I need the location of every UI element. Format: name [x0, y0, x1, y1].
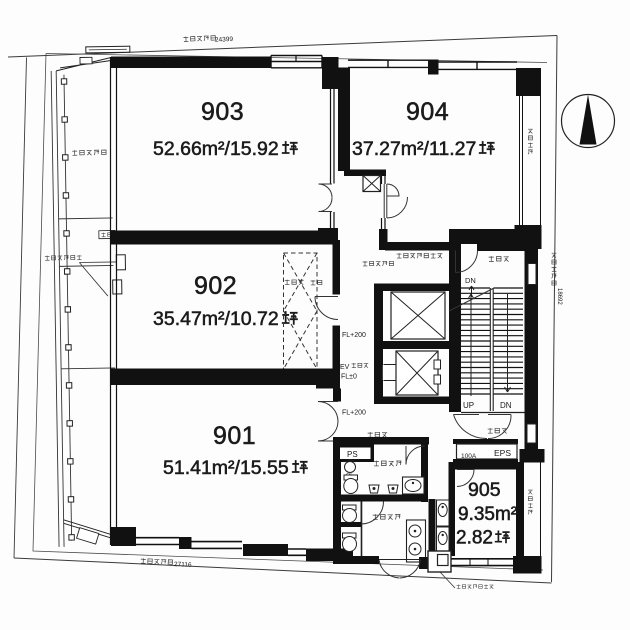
svg-text:27116: 27116 [174, 561, 192, 569]
svg-text:24399: 24399 [215, 36, 234, 44]
svg-text:51.41m²/15.55: 51.41m²/15.55 [163, 457, 289, 479]
svg-text:PS: PS [347, 450, 358, 459]
svg-text:100A: 100A [461, 453, 477, 460]
svg-text:903: 903 [201, 98, 244, 126]
svg-text:37.27m²/11.27: 37.27m²/11.27 [352, 138, 476, 160]
svg-text:FL+200: FL+200 [342, 410, 366, 417]
svg-text:9.35m²: 9.35m² [458, 504, 517, 525]
svg-text:UP: UP [463, 401, 474, 410]
svg-text:905: 905 [468, 479, 501, 501]
svg-text:FL±0: FL±0 [341, 374, 357, 381]
svg-text:35.47m²/10.72: 35.47m²/10.72 [153, 308, 279, 330]
svg-text:DN: DN [465, 276, 476, 285]
svg-text:901: 901 [213, 422, 256, 450]
svg-text:FL+200: FL+200 [342, 332, 366, 339]
svg-text:DN: DN [500, 401, 512, 410]
svg-text:902: 902 [194, 272, 237, 300]
svg-text:904: 904 [406, 98, 449, 126]
svg-text:EPS: EPS [494, 448, 511, 458]
svg-text:52.66m²/15.92: 52.66m²/15.92 [153, 138, 279, 160]
svg-text:EV: EV [340, 364, 350, 371]
svg-text:18692: 18692 [556, 288, 562, 305]
svg-text:2.82: 2.82 [456, 528, 493, 549]
